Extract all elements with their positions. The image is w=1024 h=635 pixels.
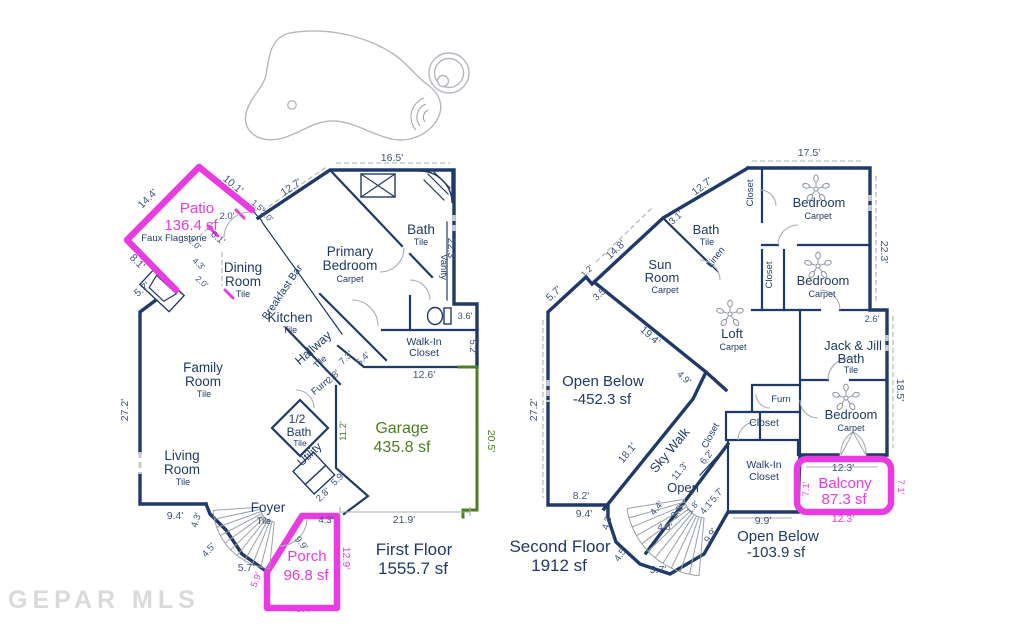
room-label-walkin-closet-2: Closet [409,347,439,359]
dimension-label: 2.6' [864,314,879,325]
floor-material: Carpet [719,342,747,352]
dimension-label: 22.3' [445,238,457,260]
dimension-label: 11.2' [338,421,349,441]
room-label-porch: Porch [287,548,326,565]
dimension-label: 7.1' [801,481,812,496]
spa-jet [438,76,449,87]
patio-area: 136.4 sf [164,217,218,234]
pool [245,31,469,140]
room-label-primary-bedroom: Primary [327,244,374,259]
second-floor-area: 1912 sf [531,556,587,575]
floor-plan-canvas: Patio136.4 sfFaux FlagstoneDiningRoomTil… [0,0,1024,635]
dimension-label: 2.0' [194,274,211,291]
tub [361,174,395,197]
dimension-label: 8.2' [573,490,590,502]
dimension-label: 16.5' [381,152,403,164]
room-label-upstairs-bath: Bath [693,222,720,237]
jack-jill-wall [800,310,887,455]
room-label-kitchen: Kitchen [267,310,312,325]
dimension-label: 12.6' [413,369,435,381]
open-below-area-1: -452.3 sf [573,391,632,408]
room-label-primary-bedroom-2: Bedroom [323,258,378,273]
room-label-bedroom-2: Bedroom [797,273,850,288]
dimension-label: 4.8' [657,522,672,533]
room-label-family-room: Family [183,360,223,375]
dimension-label: 5.4' [354,350,373,368]
dimension-label: 12.3' [832,513,854,525]
dimension-label: 20.5' [485,430,497,452]
floor-material: Tile [293,438,307,448]
dimension-label: 1.2' [579,262,596,279]
dimension-label: 27.2' [528,399,540,421]
floor-material: Tile [236,289,250,299]
dimension-label: 9.4' [296,603,313,615]
pool-drain [288,101,296,109]
dimension-label: 4.3' [189,511,204,529]
dimension-label: 22.3' [878,241,890,263]
room-label-balcony: Balcony [818,475,872,492]
room-label-patio: Patio [180,200,214,217]
room-label-foyer: Foyer [251,500,286,515]
room-label-half-bath-2: Bath [287,425,312,439]
utility-garage-wall [336,386,368,514]
dimension-label: 12.3' [832,462,854,474]
dimension-label: 5.7' [238,562,255,574]
label-closet: Closet [700,421,723,450]
label-closet: Closet [745,179,756,206]
label-linen: Linen [705,245,728,270]
dimension-label: 4.4' [648,499,666,518]
floor-material: Carpet [808,289,836,299]
floor-material: Tile [414,237,428,247]
dimension-label: 27.2' [119,399,131,421]
room-label-half-bath: 1/2 [289,412,306,426]
dimension-label: 7.3' [337,349,356,367]
floor-material: Carpet [651,285,679,295]
dimension-label: 17.5' [798,147,820,159]
label-closet: Closet [764,261,775,288]
dimension-line [543,161,893,498]
floor-material: Tile [257,516,271,526]
balcony-french-doors [841,432,866,455]
room-label-living-room-2: Room [164,462,200,477]
floor-material: Tile [176,477,190,487]
dimension-label: 5.2' [467,339,478,354]
room-label-loft: Loft [721,326,743,341]
dimension-label: 3.6' [457,311,472,322]
floor-plan-image: Patio136.4 sfFaux FlagstoneDiningRoomTil… [0,0,1024,635]
pool-outline [245,31,440,140]
dimension-label: 9.4' [576,508,593,520]
floor-material: Tile [700,237,714,247]
room-label-dining-2: Room [225,274,261,289]
balcony-area: 87.3 sf [821,491,867,508]
floor-material: Tile [844,365,858,375]
dimension-label: 21.9' [393,514,415,526]
dimension-label: 7.1' [895,479,906,494]
room-label-family-room-2: Room [185,374,221,389]
room-label-walkin-closet-2: Closet [749,471,779,483]
dimension-label: 3.5' [591,285,610,303]
open-below-area-2: -103.9 sf [747,544,806,561]
garage-area: 435.8 sf [374,439,431,456]
dimension-label: 18.1' [616,441,639,466]
dimension-label: 4.9' [674,369,693,387]
room-label-jack-and-jill-bath-2: Bath [838,351,865,366]
floor-material: Carpet [336,274,364,284]
dimension-label: 9.9' [755,515,772,527]
first-floor-labels: Patio136.4 sfFaux FlagstoneDiningRoomTil… [119,152,497,615]
dimension-label: 18.5' [894,379,906,401]
room-label-living-room: Living [164,448,199,463]
second-floor-title: Second Floor [509,537,610,556]
floor-material: Tile [197,389,211,399]
dimension-label: 5.7' [650,564,667,576]
label-furnace: Furn [771,394,791,405]
dimension-label: 4.3' [191,256,208,273]
dimension-label: 19.4' [638,324,663,348]
dimension-label: 4.3' [318,515,333,526]
ceiling-fan-icon [716,300,744,326]
porch-area: 96.8 sf [283,567,329,584]
label-open-below-2: Open Below [737,528,819,545]
corner-shower [420,171,452,203]
first-floor-title: First Floor [376,540,453,559]
label-closet: Closet [749,417,779,429]
first-floor-area: 1555.7 sf [378,559,448,578]
dimension-label: 4.5' [612,545,630,564]
room-label-sun-room-2: Room [645,270,680,285]
floor-material: Carpet [837,423,865,433]
label-open-below-1: Open Below [562,373,644,390]
room-label-bedroom-1: Bedroom [793,195,846,210]
dimension-label: 4.5' [200,541,218,560]
dimension-label: 2.0' [219,211,234,222]
dimension-label: 9.4' [167,510,184,522]
label-open: Open [667,480,699,495]
toilet [428,308,452,325]
room-label-dining: Dining [224,260,262,275]
dimension-label: 14.8' [604,238,629,262]
room-label-bedroom-3: Bedroom [825,407,878,422]
watermark: GEPAR MLS [8,586,200,614]
room-label-garage: Garage [375,420,428,437]
room-label-walkin-closet: Walk-In [746,459,781,471]
floor-material: Carpet [804,211,832,221]
room-label-bath: Bath [407,222,435,237]
dimension-label: 12.9' [340,547,352,569]
garage-outline [459,367,477,517]
floor-material: Tile [283,325,297,335]
